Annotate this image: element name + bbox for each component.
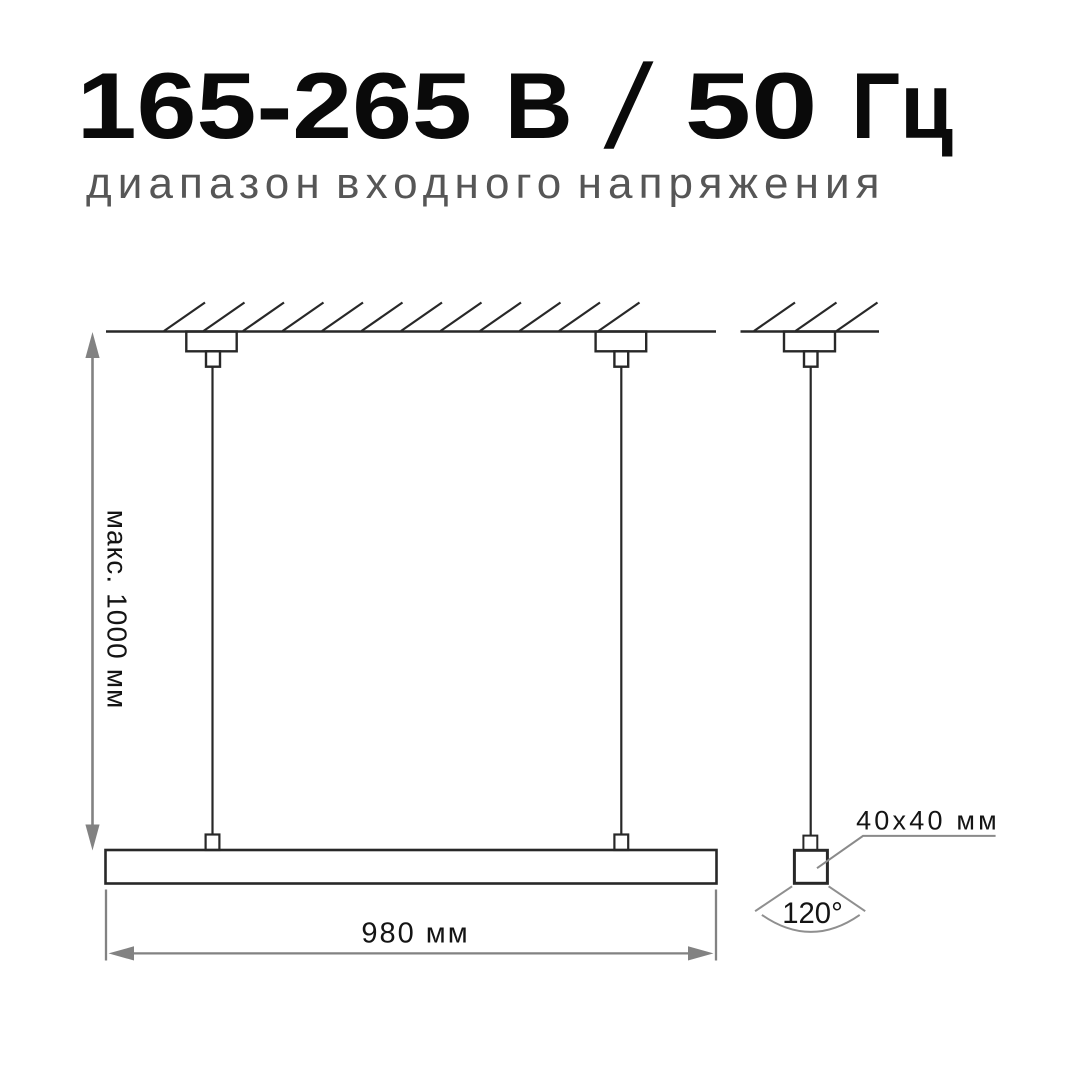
svg-text:диапазон входного напряжения: диапазон входного напряжения: [86, 159, 886, 208]
svg-text:120°: 120°: [782, 897, 843, 930]
svg-text:В: В: [505, 53, 573, 158]
svg-text:макс. 1000 мм: макс. 1000 мм: [102, 510, 133, 710]
svg-text:50: 50: [685, 53, 818, 158]
svg-text:165-265: 165-265: [77, 54, 472, 158]
svg-text:40x40 мм: 40x40 мм: [856, 806, 1000, 836]
svg-text:980 мм: 980 мм: [361, 918, 469, 950]
svg-text:Гц: Гц: [851, 54, 953, 159]
